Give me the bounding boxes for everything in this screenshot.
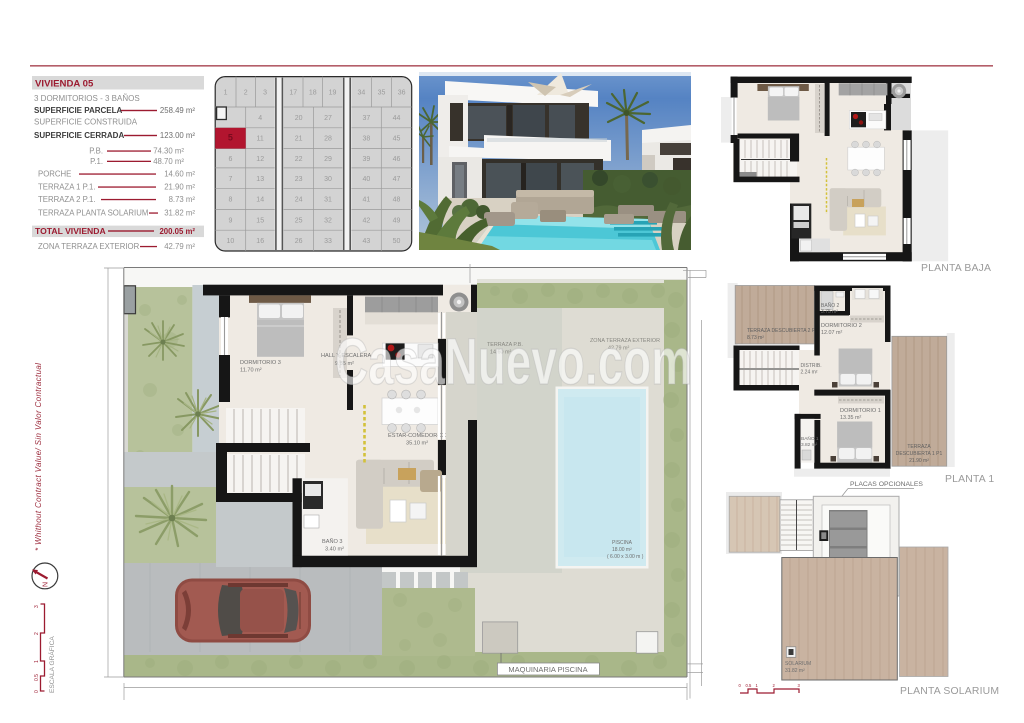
svg-text:29: 29 [324,156,332,163]
svg-text:18: 18 [309,89,317,96]
svg-text:3.75 m²: 3.75 m² [821,309,838,315]
svg-text:46: 46 [393,156,401,163]
svg-text:TOTAL VIVIENDA: TOTAL VIVIENDA [35,226,106,236]
svg-text:14: 14 [256,197,264,204]
svg-text:2: 2 [244,89,248,96]
svg-text:17: 17 [289,89,297,96]
svg-text:ESCALA GRÁFICA: ESCALA GRÁFICA [47,636,56,693]
svg-text:25: 25 [295,217,303,224]
svg-text:38: 38 [363,136,371,143]
svg-text:1: 1 [34,660,40,663]
svg-text:12: 12 [256,156,264,163]
svg-text:258.49 m²: 258.49 m² [160,106,196,115]
svg-text:36: 36 [398,89,406,96]
svg-text:21: 21 [295,136,303,143]
svg-text:3.82 m²: 3.82 m² [801,442,818,448]
svg-text:BAÑO 1: BAÑO 1 [801,435,819,442]
svg-text:TERRAZA DESCUBIERTA 2 P1: TERRAZA DESCUBIERTA 2 P1 [747,328,818,334]
svg-text:21.90 m²: 21.90 m² [164,183,195,192]
svg-text:22: 22 [295,156,303,163]
svg-text:SOLARIUM: SOLARIUM [785,661,811,667]
svg-text:12.07 m²: 12.07 m² [821,330,842,336]
svg-text:* Whithout Contract Value/ Sin: * Whithout Contract Value/ Sin Valor Con… [34,363,43,551]
svg-text:1: 1 [224,89,228,96]
svg-text:200.05 m²: 200.05 m² [159,227,195,236]
svg-text:32: 32 [324,217,332,224]
svg-text:8.73 m²: 8.73 m² [169,195,196,204]
svg-text:48.70 m²: 48.70 m² [153,157,184,166]
svg-text:11: 11 [257,136,264,143]
svg-text:3.40 m²: 3.40 m² [325,547,344,553]
svg-text:TERRAZA PLANTA SOLARIUM: TERRAZA PLANTA SOLARIUM [38,209,148,218]
svg-text:47: 47 [393,176,401,183]
svg-text:8: 8 [228,197,232,204]
svg-text:42: 42 [363,217,371,224]
svg-text:TERRAZA 1 P.1.: TERRAZA 1 P.1. [38,183,96,192]
svg-text:PLACAS OPCIONALES: PLACAS OPCIONALES [850,481,923,488]
svg-text:43: 43 [363,238,371,245]
svg-text:123.00 m²: 123.00 m² [160,131,196,140]
svg-text:26: 26 [295,238,303,245]
svg-text:ZONA TERRAZA EXTERIOR: ZONA TERRAZA EXTERIOR [38,242,140,251]
svg-text:30: 30 [324,176,332,183]
svg-text:19: 19 [329,89,337,96]
svg-text:4: 4 [258,115,262,122]
svg-text:50: 50 [393,238,401,245]
svg-text:3: 3 [263,89,267,96]
svg-text:5: 5 [228,133,233,143]
svg-text:13.35 m²: 13.35 m² [840,415,861,421]
svg-text:DORMITORIO 2: DORMITORIO 2 [821,323,862,329]
svg-text:( 6.00 x 3.00 m ): ( 6.00 x 3.00 m ) [607,554,644,560]
svg-text:2.24 m²: 2.24 m² [801,370,818,376]
svg-text:BAÑO 3: BAÑO 3 [322,538,343,545]
svg-text:44: 44 [393,115,401,122]
svg-text:13: 13 [256,176,264,183]
svg-text:37: 37 [363,115,371,122]
svg-text:41: 41 [363,197,371,204]
svg-text:P.B.: P.B. [89,147,103,156]
svg-text:3: 3 [34,605,40,608]
svg-text:10: 10 [227,238,235,245]
svg-text:0.5: 0.5 [746,683,752,688]
svg-text:15: 15 [256,217,264,224]
svg-text:40: 40 [363,176,371,183]
svg-text:21.90 m²: 21.90 m² [909,458,929,464]
svg-text:0: 0 [34,690,40,693]
svg-text:28: 28 [324,136,332,143]
svg-text:8.73 m²: 8.73 m² [747,335,764,341]
svg-text:0.5: 0.5 [34,674,40,681]
svg-text:18.00 m²: 18.00 m² [612,547,632,553]
svg-text:SUPERFICIE CERRADA: SUPERFICIE CERRADA [34,131,124,140]
svg-text:PLANTA SOLARIUM: PLANTA SOLARIUM [900,686,999,697]
svg-text:39: 39 [363,156,371,163]
svg-text:3 DORMITORIOS - 3 BAÑOS: 3 DORMITORIOS - 3 BAÑOS [34,94,140,103]
svg-text:PLANTA BAJA: PLANTA BAJA [921,263,991,274]
svg-text:DISTRIB.: DISTRIB. [801,363,822,369]
svg-text:DORMITORIO 1: DORMITORIO 1 [840,408,881,414]
svg-text:DESCUBIERTA 1 P1: DESCUBIERTA 1 P1 [896,451,943,457]
svg-text:TERRAZA 2 P.1.: TERRAZA 2 P.1. [38,195,96,204]
svg-text:11.70 m²: 11.70 m² [240,368,262,374]
svg-text:74.30 m²: 74.30 m² [153,147,184,156]
svg-text:31: 31 [324,197,332,204]
svg-text:42.79 m²: 42.79 m² [164,242,195,251]
svg-text:35.10 m²: 35.10 m² [406,441,428,447]
svg-text:16: 16 [256,238,264,245]
svg-text:9: 9 [228,217,232,224]
svg-text:2: 2 [34,632,40,635]
svg-text:20: 20 [295,115,303,122]
svg-text:7: 7 [228,176,232,183]
svg-text:MAQUINARIA PISCINA: MAQUINARIA PISCINA [508,665,587,674]
svg-text:24: 24 [295,197,303,204]
svg-text:BAÑO 2: BAÑO 2 [821,302,840,309]
svg-text:31.82 m²: 31.82 m² [785,668,805,674]
svg-text:34: 34 [358,89,366,96]
svg-text:P.1.: P.1. [90,157,103,166]
svg-text:PORCHE: PORCHE [38,170,71,179]
svg-text:PLANTA 1: PLANTA 1 [945,474,994,485]
svg-text:DORMITORIO 3: DORMITORIO 3 [240,360,281,366]
svg-text:VIVIENDA 05: VIVIENDA 05 [35,79,94,90]
svg-text:N: N [43,582,50,587]
svg-text:14.60 m²: 14.60 m² [164,170,195,179]
svg-text:SUPERFICIE CONSTRUIDA: SUPERFICIE CONSTRUIDA [34,118,138,127]
svg-text:27: 27 [324,115,332,122]
svg-text:45: 45 [393,136,401,143]
svg-text:49: 49 [393,217,401,224]
svg-text:48: 48 [393,197,401,204]
svg-text:33: 33 [324,238,332,245]
svg-text:CasaNuevo.com: CasaNuevo.com [335,326,692,399]
svg-text:23: 23 [295,176,303,183]
svg-text:SUPERFICIE PARCELA: SUPERFICIE PARCELA [34,106,123,115]
svg-text:35: 35 [378,89,386,96]
svg-text:31.82 m²: 31.82 m² [164,209,195,218]
svg-text:6: 6 [228,156,232,163]
svg-text:PISCINA: PISCINA [612,540,633,546]
svg-text:TERRAZA: TERRAZA [907,444,931,450]
